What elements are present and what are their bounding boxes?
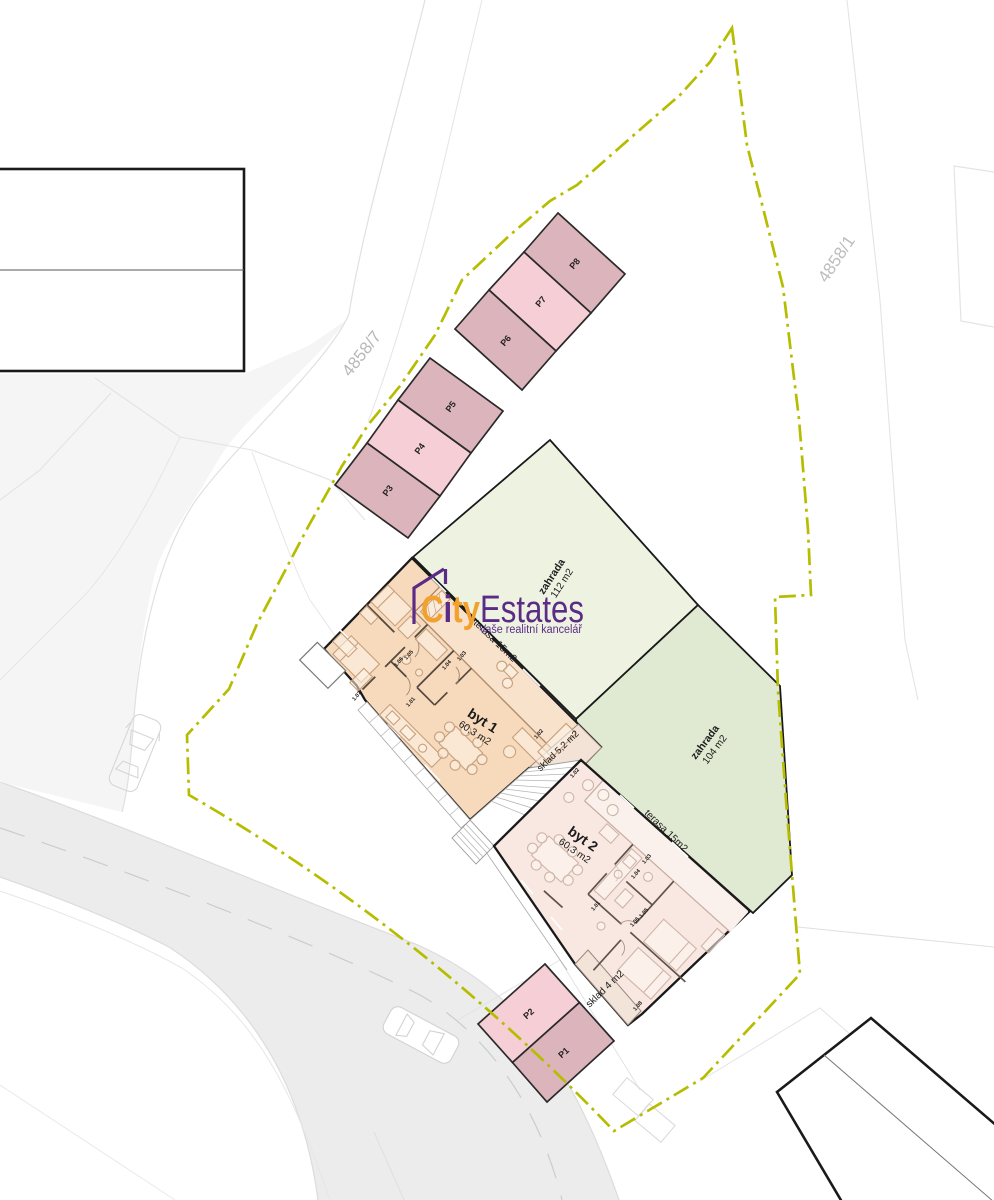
svg-text:Vaše realitní kancelář: Vaše realitní kancelář [479, 624, 583, 636]
